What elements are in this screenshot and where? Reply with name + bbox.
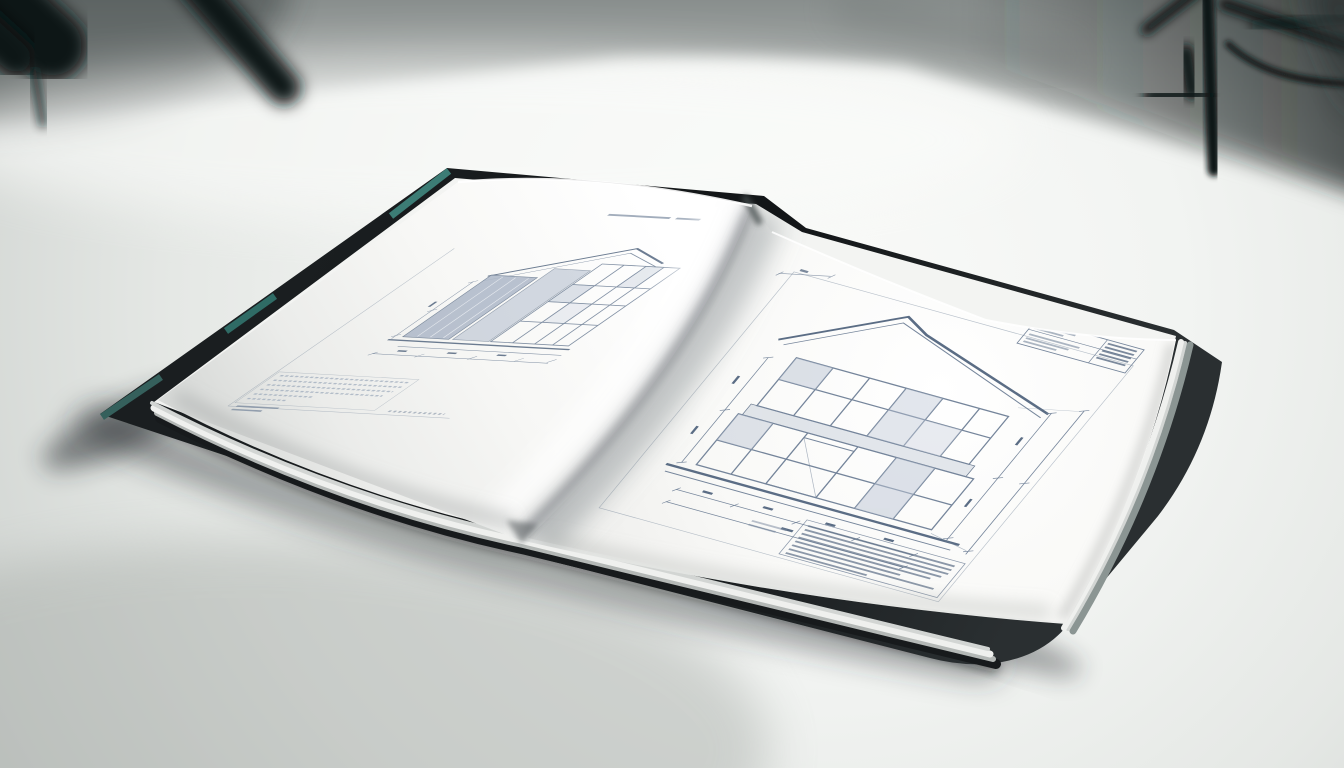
tripod-clamp-foot xyxy=(1150,94,1204,96)
tripod-clamp xyxy=(1186,52,1192,92)
photo-scene: Photograph of an open hardcover book of … xyxy=(0,0,1344,768)
photo-canvas xyxy=(0,0,1344,768)
tripod-pole xyxy=(1206,0,1214,170)
